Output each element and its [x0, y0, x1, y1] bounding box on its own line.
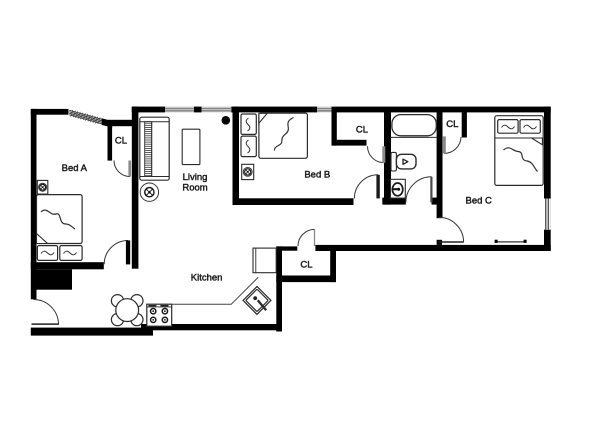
svg-text:CL: CL — [115, 136, 127, 147]
svg-text:Living: Living — [183, 172, 208, 183]
svg-text:Kitchen: Kitchen — [191, 272, 223, 283]
svg-text:Room: Room — [182, 182, 207, 193]
svg-text:CL: CL — [300, 259, 312, 270]
svg-text:Bed C: Bed C — [465, 196, 492, 207]
svg-text:CL: CL — [356, 124, 368, 135]
svg-text:CL: CL — [446, 119, 458, 130]
svg-text:Bed B: Bed B — [304, 169, 330, 180]
svg-text:Bed A: Bed A — [62, 163, 88, 174]
